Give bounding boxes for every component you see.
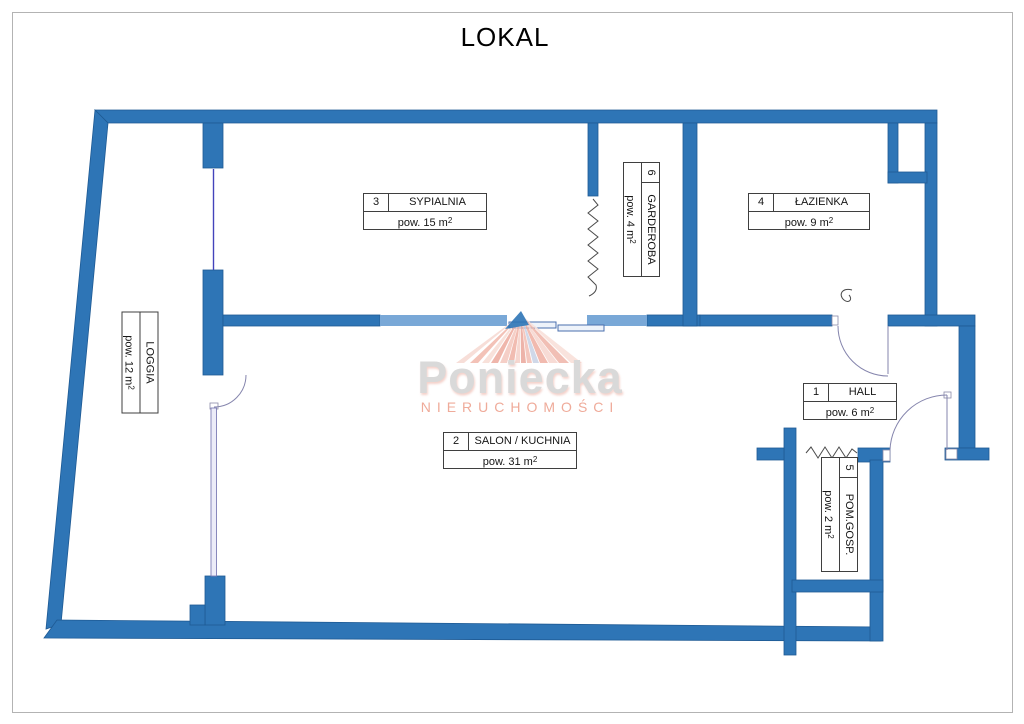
watermark-brand: Poniecka (410, 352, 630, 404)
door-lazienka-arc (838, 326, 888, 376)
pier (203, 270, 223, 375)
room-area: pow. 4 m2 (624, 163, 641, 276)
door-loggia (214, 375, 246, 407)
wall-hall-top-right (888, 315, 975, 326)
pier (203, 123, 223, 168)
room-name: LOGGIA (141, 313, 158, 413)
wall-pomgosp-left (784, 428, 796, 655)
wall-light-segment (380, 315, 507, 326)
room-number: 3 (364, 194, 389, 211)
floor-plan-page: LOKAL (0, 0, 1024, 724)
wall-hall-right (959, 326, 975, 448)
room-number: 2 (444, 433, 469, 450)
wall-light-segment (587, 315, 647, 326)
room-area: pow. 15 m2 (364, 212, 486, 229)
room-number: 5 (840, 458, 857, 478)
room-number: 4 (749, 194, 774, 211)
wall-left-slanted (46, 110, 108, 629)
wall-duct-bottom (888, 172, 927, 183)
room-name: POM.GOSP. (840, 478, 857, 571)
room-name: SYPIALNIA (389, 194, 486, 211)
door-entrance-arc (890, 395, 947, 450)
room-number: 6 (642, 163, 659, 183)
room-area: pow. 12 m2 (123, 313, 140, 413)
room-label-salon: 2 SALON / KUCHNIA pow. 31 m2 (443, 432, 577, 469)
watermark-subtitle: NIERUCHOMOŚCI (404, 399, 636, 415)
room-label-hall: 1 HALL pow. 6 m2 (803, 383, 897, 420)
room-area: pow. 2 m2 (822, 458, 839, 571)
wall-garderoba-lazienka (683, 123, 697, 326)
curl-lazienka (841, 289, 852, 301)
wall-pomgosp-stub (757, 448, 784, 460)
pier-step (190, 605, 205, 625)
pier (205, 576, 225, 625)
wall-hall-top-left (700, 315, 832, 326)
sliding-door-panel (558, 325, 604, 331)
room-area: pow. 9 m2 (749, 212, 869, 229)
room-label-lazienka: 4 ŁAZIENKA pow. 9 m2 (748, 193, 870, 230)
wall-right (925, 123, 937, 326)
room-label-sypialnia: 3 SYPIALNIA pow. 15 m2 (363, 193, 487, 230)
room-name: SALON / KUCHNIA (469, 433, 576, 450)
wall-mid-left (223, 315, 380, 326)
wall-pomgosp-right (870, 460, 883, 641)
wall-garderoba-stub (588, 123, 598, 196)
room-name: GARDEROBA (642, 183, 659, 276)
room-name: ŁAZIENKA (774, 194, 869, 211)
zigzag-garderoba (588, 199, 598, 296)
room-name: HALL (829, 384, 896, 401)
window-loggia-bottom (211, 408, 217, 576)
room-label-garderoba: 6 GARDEROBA pow. 4 m2 (623, 162, 660, 277)
room-area: pow. 6 m2 (804, 402, 896, 419)
wall-pomgosp-bottom (792, 580, 883, 592)
room-number: 1 (804, 384, 829, 401)
room-label-pomgosp: 5 POM.GOSP. pow. 2 m2 (821, 457, 858, 572)
wall-top (95, 110, 937, 123)
wall-bottom (44, 620, 881, 641)
room-label-loggia: LOGGIA pow. 12 m2 (122, 312, 159, 414)
room-area: pow. 31 m2 (444, 451, 576, 468)
